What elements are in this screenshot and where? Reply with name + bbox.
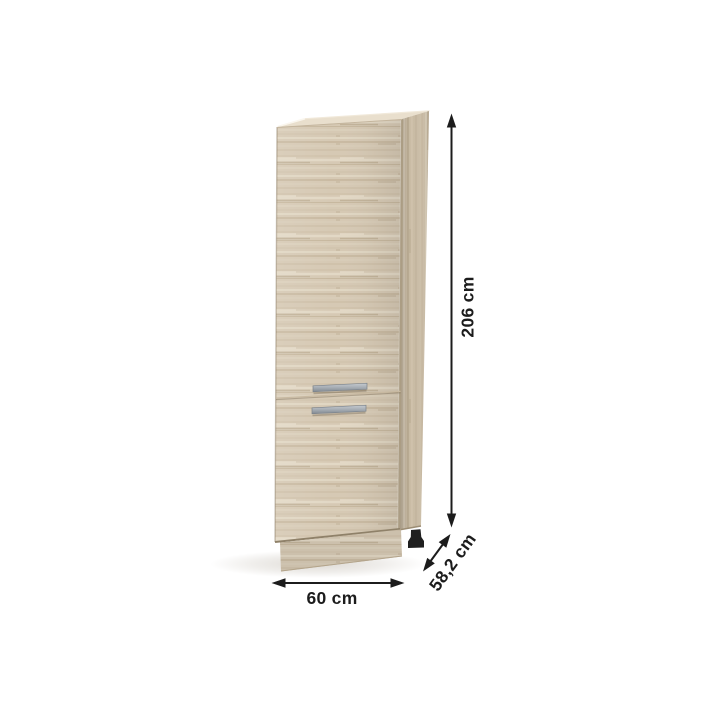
depth-dimension: 58,2 cm <box>423 529 480 594</box>
width-dimension-label: 60 cm <box>306 588 357 608</box>
arrowhead-up-right-icon <box>439 534 451 548</box>
width-dimension: 60 cm <box>272 578 405 608</box>
height-dimension: 206 cm <box>447 114 478 528</box>
arrowhead-down-icon <box>447 514 456 528</box>
product-dimension-image: 206 cm 60 cm 58,2 cm <box>0 0 720 720</box>
arrowhead-left-icon <box>272 578 286 587</box>
cabinet-foot <box>408 529 424 548</box>
cabinet-dimension-diagram: 206 cm 60 cm 58,2 cm <box>0 0 720 720</box>
cabinet <box>275 111 430 572</box>
cabinet-front-shading <box>275 119 402 542</box>
depth-dimension-label: 58,2 cm <box>425 529 480 594</box>
arrowhead-right-icon <box>391 578 405 587</box>
arrowhead-up-icon <box>447 114 456 128</box>
height-dimension-label: 206 cm <box>458 276 478 337</box>
